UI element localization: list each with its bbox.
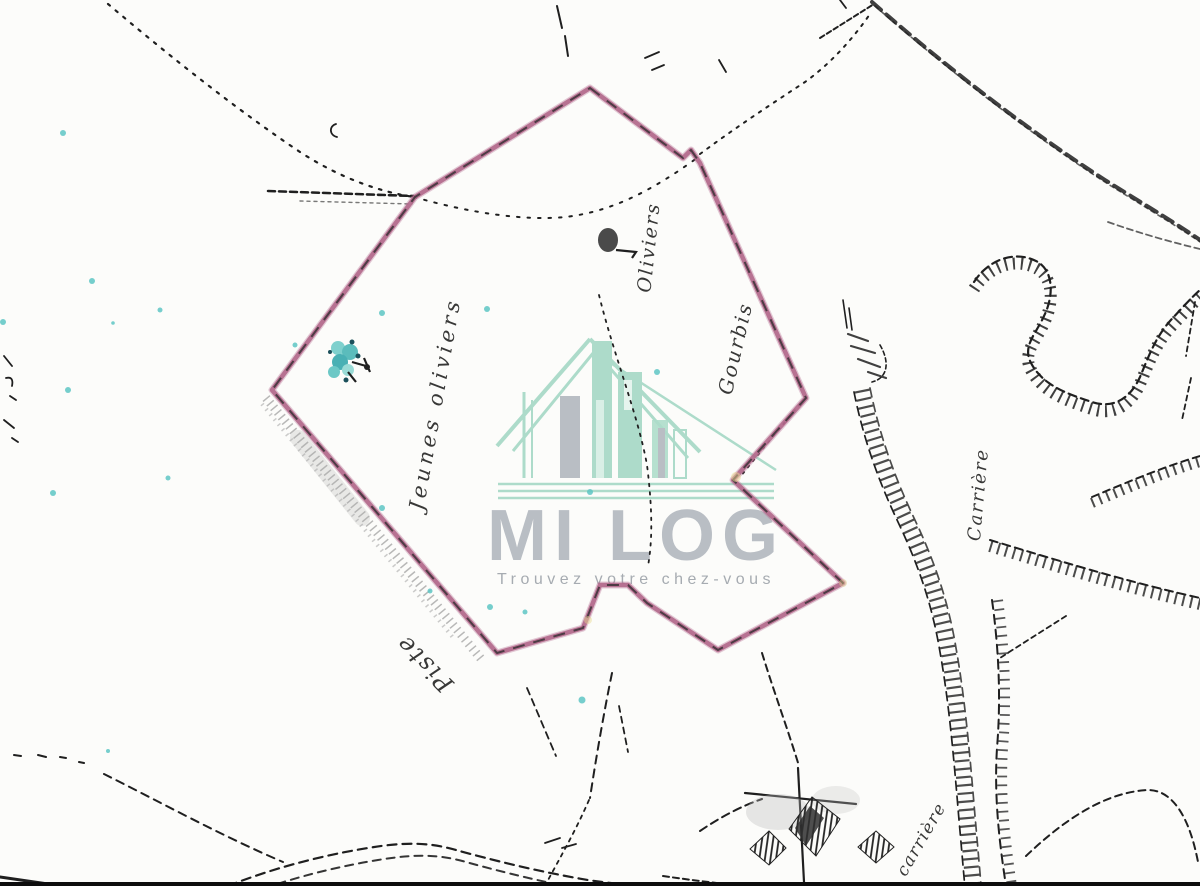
dotted-track-nw xyxy=(108,4,414,197)
teal-speck xyxy=(484,306,490,312)
quarry-outline xyxy=(974,257,1200,405)
teal-speck xyxy=(293,343,298,348)
curve-br-bottom xyxy=(1026,790,1198,862)
dash-pair-below-parcel xyxy=(619,706,628,752)
scratchy-branch-ne xyxy=(820,4,874,38)
dashed-line-below-parcel xyxy=(590,673,612,798)
stray-letter-c xyxy=(331,124,337,137)
tick-marks-above-apex xyxy=(557,6,568,56)
scribble-east-1 xyxy=(843,300,852,330)
dots-bl xyxy=(14,755,84,763)
small-marks-bottom xyxy=(545,838,576,848)
teal-speck xyxy=(89,278,95,284)
teal-speck xyxy=(158,308,163,313)
quarry-hachures xyxy=(974,264,1200,412)
tree-symbol-small xyxy=(598,228,636,258)
label-piste: Piste xyxy=(390,629,460,699)
teal-speck xyxy=(379,505,385,511)
logo-building-tall-window xyxy=(596,400,604,478)
hatched-building-1 xyxy=(750,831,786,865)
dashed-line-top-corner-echo xyxy=(300,201,412,204)
dashed-line-to-buildings xyxy=(762,653,799,766)
tree-foliage xyxy=(342,364,354,376)
dotted-track-from-notch xyxy=(700,14,870,154)
teal-speck xyxy=(579,697,586,704)
escarpment-se-line xyxy=(990,540,1200,598)
scan-tinge-2 xyxy=(584,616,592,624)
scratchy-line-ne-lower xyxy=(1108,222,1200,249)
label-oliviers: Oliviers xyxy=(633,201,664,293)
teal-speck xyxy=(166,476,171,481)
scratchy-line-ne xyxy=(872,2,1200,240)
tree-foliage-dot xyxy=(350,340,355,345)
scanned-cadastral-map: MI LOG Trouvez votre chez-vous xyxy=(0,0,1200,886)
quarry-lower-line xyxy=(1092,456,1200,497)
teal-speck xyxy=(0,319,6,325)
tree-symbol-main xyxy=(328,340,370,383)
hatched-building-3 xyxy=(858,831,894,863)
scribble-east-2 xyxy=(848,334,886,378)
tree-foliage xyxy=(328,366,340,378)
small-tree-blob xyxy=(598,228,618,252)
buildings-group xyxy=(746,786,894,865)
tree-foliage-dot xyxy=(356,354,361,359)
teal-speck xyxy=(60,130,66,136)
teal-speck xyxy=(379,310,385,316)
label-gourbis: Gourbis xyxy=(713,300,758,397)
hatched-path-ticks xyxy=(862,390,973,886)
small-tree-branch xyxy=(616,250,636,258)
road-bottom-lower xyxy=(238,856,672,886)
quarry-lower-hachures xyxy=(1092,462,1200,503)
track-bl xyxy=(104,774,283,862)
stray-marks-top xyxy=(645,0,846,72)
label-jeunes-oliviers: Jeunes oliviers xyxy=(404,295,466,516)
teal-speck xyxy=(111,321,115,325)
tree-foliage-dot xyxy=(344,378,349,383)
right-edge-dashes xyxy=(1182,302,1195,420)
teal-speck xyxy=(487,604,493,610)
teal-speck xyxy=(587,489,593,495)
tree-branch-knot xyxy=(364,364,370,370)
branch-br xyxy=(1000,616,1066,658)
left-edge-scratches xyxy=(4,356,18,442)
watermark-tagline: Trouvez votre chez-vous xyxy=(497,571,775,588)
dashed-line-top-corner xyxy=(268,191,414,196)
teal-speck xyxy=(654,369,660,375)
scan-tinge-3 xyxy=(839,579,847,587)
map-canvas: MI LOG Trouvez votre chez-vous xyxy=(0,0,1200,886)
path-br-vertical xyxy=(992,600,1006,886)
teal-speck xyxy=(523,610,528,615)
teal-speck xyxy=(50,490,56,496)
logo-building-gray xyxy=(560,396,580,478)
dashed-short-sw xyxy=(527,688,556,756)
watermark-brand: MI LOG xyxy=(487,496,785,576)
scan-edge-bottom xyxy=(0,882,1200,886)
label-carriere-right: Carrière xyxy=(964,447,993,542)
smudge-sw xyxy=(298,438,362,518)
tree-foliage-dot xyxy=(328,350,332,354)
teal-speck xyxy=(106,749,110,753)
scan-tinge-1 xyxy=(731,472,741,482)
teal-speck xyxy=(428,589,433,594)
teal-speck xyxy=(65,387,71,393)
escarpment-se-hachures xyxy=(990,546,1200,604)
label-carriere-bottom: carrière xyxy=(893,799,951,880)
logo-building-small-window xyxy=(658,428,665,478)
